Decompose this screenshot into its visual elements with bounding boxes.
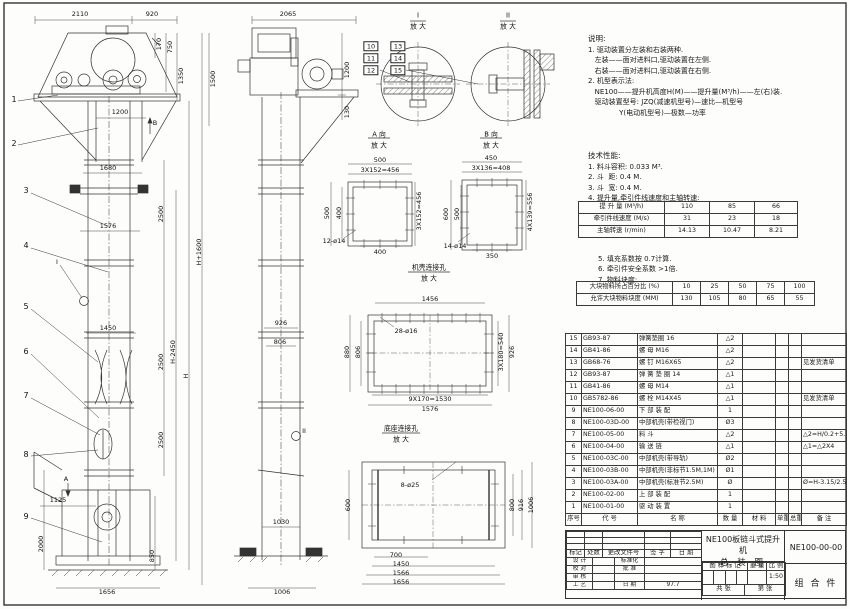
cell <box>743 394 776 406</box>
cell: 1 <box>718 406 743 418</box>
cell: 螺 母 M16 <box>638 346 718 358</box>
cell: 9 <box>566 406 582 418</box>
cell <box>789 430 802 442</box>
cell <box>802 490 847 502</box>
cell <box>802 382 847 394</box>
notes-title: 说明: <box>588 34 606 43</box>
cell: △1 <box>718 370 743 382</box>
detail-II <box>406 42 554 126</box>
tech-title: 技术性能: <box>588 151 621 160</box>
cell: NE100-05-00 <box>582 430 638 442</box>
cell: 12 <box>566 370 582 382</box>
cell <box>789 418 802 430</box>
cell: 10.47 <box>710 226 755 238</box>
sign-cell: 校 对 <box>567 565 593 573</box>
cell <box>776 490 789 502</box>
cell <box>802 454 847 466</box>
cell: 100 <box>785 282 815 294</box>
sign-cell: 设 计 <box>567 557 593 565</box>
tech-block: 技术性能: 1. 料斗容积: 0.033 M³. 2. 斗 距: 0.4 M. … <box>588 150 700 204</box>
cell: △2 <box>718 346 743 358</box>
cell: GB93-87 <box>582 334 638 346</box>
cell <box>776 502 789 514</box>
cell <box>743 382 776 394</box>
cell <box>776 430 789 442</box>
cell <box>776 358 789 370</box>
change-header-cell: 处数 <box>585 550 603 558</box>
cell: 6 <box>566 442 582 454</box>
cell: 23 <box>710 214 755 226</box>
cell: NE100-02-00 <box>582 490 638 502</box>
cell <box>802 334 847 346</box>
cell: 18 <box>755 214 798 226</box>
base-holes-view <box>349 462 532 584</box>
part-class: 组 合 件 <box>785 564 847 600</box>
sign-cell <box>593 557 615 565</box>
cell: 15 <box>566 334 582 346</box>
cell: NE100-06-00 <box>582 406 638 418</box>
casing-holes-view <box>350 303 509 405</box>
cell: 上 部 装 配 <box>638 490 718 502</box>
bom-header-cell: 名 称 <box>638 514 718 526</box>
cell: 130 <box>673 294 701 306</box>
front-view <box>18 16 209 588</box>
cell: 85 <box>710 202 755 214</box>
drawing-title: NE100板链斗式提升机 <box>702 534 784 556</box>
cell: NE100-03A-00 <box>582 478 638 490</box>
cell: 8.21 <box>755 226 798 238</box>
detail-I <box>368 10 516 433</box>
cell: 提 升 量 (M³/h) <box>579 202 665 214</box>
cell: 下 部 装 配 <box>638 406 718 418</box>
mark-header-cell: 图 样 标 记 <box>703 563 748 571</box>
sign-cell: 97.7 <box>645 581 702 589</box>
drawing-number: NE100-00-00 <box>785 531 847 564</box>
cell <box>743 466 776 478</box>
change-header-cell: 更改文件号 <box>603 550 645 558</box>
cell: 4 <box>566 466 582 478</box>
cell: 10 <box>566 394 582 406</box>
cell <box>743 418 776 430</box>
cell <box>789 502 802 514</box>
cell: 10 <box>673 282 701 294</box>
sign-cell <box>593 565 615 573</box>
cell: Ø1 <box>718 466 743 478</box>
cell <box>789 382 802 394</box>
title-block-number-area: NE100-00-00 组 合 件 <box>784 531 847 600</box>
sign-cell <box>615 573 645 581</box>
bom-header-cell: 总重 <box>789 514 802 526</box>
cell: △1 <box>718 382 743 394</box>
cell <box>789 454 802 466</box>
mark-header-cell: 重 量 <box>748 563 767 571</box>
cell <box>776 370 789 382</box>
cell: 50 <box>729 282 757 294</box>
cell <box>802 370 847 382</box>
cell: NE100-01-00 <box>582 502 638 514</box>
cell: 65 <box>757 294 785 306</box>
title-block-title-area: NE100板链斗式提升机 总 装 图 图 样 标 记重 量比 例 1:50 <box>701 531 784 600</box>
notes-block: 说明: 1. 驱动装置分左装和右装两种. 左装——面对进料口,驱动装置在左侧. … <box>588 33 782 118</box>
cell: 14 <box>566 346 582 358</box>
change-header-cell: 标记 <box>567 550 585 558</box>
cell: 55 <box>785 294 815 306</box>
cell: 31 <box>665 214 710 226</box>
sheet-number: 第 张 <box>745 584 786 595</box>
cell: NE100-03B-00 <box>582 466 638 478</box>
cell <box>789 358 802 370</box>
cell: GB5782-86 <box>582 394 638 406</box>
cell: GB41-86 <box>582 382 638 394</box>
bom-header-cell: 数 量 <box>718 514 743 526</box>
tech-lines: 1. 料斗容积: 0.033 M³. 2. 斗 距: 0.4 M. 3. 斗 宽… <box>588 163 700 203</box>
cell <box>743 346 776 358</box>
cell <box>776 466 789 478</box>
cell <box>743 490 776 502</box>
cell: △2 <box>718 358 743 370</box>
cell <box>789 466 802 478</box>
notes-lines: 1. 驱动装置分左装和右装两种. 左装——面对进料口,驱动装置在左侧. 右装——… <box>588 46 782 117</box>
cell: △1 <box>718 442 743 454</box>
cell: 驱 动 装 置 <box>638 502 718 514</box>
side-view <box>234 16 358 588</box>
cell: Ø <box>718 478 743 490</box>
cell <box>743 502 776 514</box>
cell: 螺 栓 M14X45 <box>638 394 718 406</box>
cell: 中部机壳(非标节1.5M,1M) <box>638 466 718 478</box>
cell <box>743 442 776 454</box>
cell <box>789 406 802 418</box>
cell: 允许大块物料块度 (MM) <box>577 294 673 306</box>
cell <box>743 406 776 418</box>
cell: NE100-03C-00 <box>582 454 638 466</box>
cell <box>776 418 789 430</box>
bom-header-cell: 单重 <box>776 514 789 526</box>
cell: 110 <box>665 202 710 214</box>
cell: GB93-87 <box>582 370 638 382</box>
cell <box>776 382 789 394</box>
cell <box>776 406 789 418</box>
sign-cell <box>593 581 615 589</box>
cell: 螺 钉 M16X65 <box>638 358 718 370</box>
cell: 13 <box>566 358 582 370</box>
bom-table: 15GB93-87弹簧垫圈 16△214GB41-86螺 母 M16△213GB… <box>565 333 847 526</box>
cell: 弹簧垫圈 16 <box>638 334 718 346</box>
cell: 主轴转速 (r/min) <box>579 226 665 238</box>
title-block-revision-area: 标记处数更改文件号签 字日 期 设 计标准化校 对批 准审 核工 艺日 期97.… <box>566 531 701 600</box>
sign-cell: 审 核 <box>567 573 593 581</box>
cell <box>776 454 789 466</box>
cell <box>776 442 789 454</box>
cell <box>802 502 847 514</box>
notes2-block: 5. 填充系数按 0.7计算. 6. 牵引件安全系数 >1倍. 7. 物料块度: <box>598 243 678 285</box>
cell: 7 <box>566 430 582 442</box>
cell: Ø=H-3.15/2.5 <box>802 478 847 490</box>
cell: Ø3 <box>718 418 743 430</box>
cell <box>789 442 802 454</box>
cell: 14.13 <box>665 226 710 238</box>
cell: NE100-03D-00 <box>582 418 638 430</box>
cell: 中部机壳(标准节2.5M) <box>638 478 718 490</box>
cell <box>802 346 847 358</box>
cell: NE100-04-00 <box>582 442 638 454</box>
sign-cell <box>645 557 702 565</box>
cell: △1 <box>718 394 743 406</box>
cell: 105 <box>701 294 729 306</box>
cell: △2=H/0.2+5.75 <box>802 430 847 442</box>
cell: △1=△2X4 <box>802 442 847 454</box>
cell: 中部机壳(带导轨) <box>638 454 718 466</box>
cell: 输 送 链 <box>638 442 718 454</box>
lump-size-table: 大块物料所占百分比 (%)10255075100允许大块物料块度 (MM)130… <box>576 281 815 306</box>
cell <box>743 430 776 442</box>
sign-cell <box>645 565 702 573</box>
cell: 1 <box>718 502 743 514</box>
cell: Ø2 <box>718 454 743 466</box>
cell: 大块物料所占百分比 (%) <box>577 282 673 294</box>
cell <box>743 454 776 466</box>
cell <box>789 394 802 406</box>
cell: 66 <box>755 202 798 214</box>
cell: 3 <box>566 478 582 490</box>
scale-value: 1:50 <box>767 570 786 584</box>
cell: 螺 母 M14 <box>638 382 718 394</box>
sign-cell: 批 准 <box>615 565 645 573</box>
cell: 8 <box>566 418 582 430</box>
cell: 料 斗 <box>638 430 718 442</box>
cell: △2 <box>718 334 743 346</box>
cell <box>802 406 847 418</box>
cell <box>802 418 847 430</box>
cell <box>743 358 776 370</box>
cell <box>789 346 802 358</box>
cell: 弹 簧 垫 圈 14 <box>638 370 718 382</box>
sign-cell <box>645 573 702 581</box>
cell <box>789 370 802 382</box>
sign-cell: 标准化 <box>615 557 645 565</box>
cell <box>789 334 802 346</box>
cell: 1 <box>566 502 582 514</box>
bom-header-cell: 备 注 <box>802 514 847 526</box>
sign-cell: 工 艺 <box>567 581 593 589</box>
cell <box>776 334 789 346</box>
cell: 牵引件线速度 (M/s) <box>579 214 665 226</box>
cell: 75 <box>757 282 785 294</box>
view-A <box>331 164 415 248</box>
cell: 见发货清单 <box>802 358 847 370</box>
cell: △2 <box>718 430 743 442</box>
bom-header-cell: 代 号 <box>582 514 638 526</box>
cell <box>776 478 789 490</box>
cell <box>743 478 776 490</box>
cell <box>789 478 802 490</box>
mark-header-cell: 比 例 <box>767 563 786 571</box>
performance-table: 提 升 量 (M³/h)1108566牵引件线速度 (M/s)312318主轴转… <box>578 201 798 238</box>
cell <box>776 346 789 358</box>
cell: 25 <box>701 282 729 294</box>
cell: 中部机壳(带检视门) <box>638 418 718 430</box>
view-B <box>451 162 526 252</box>
cell: 80 <box>729 294 757 306</box>
cell <box>789 490 802 502</box>
notes2-lines: 5. 填充系数按 0.7计算. 6. 牵引件安全系数 >1倍. 7. 物料块度: <box>598 255 678 284</box>
sign-cell: 日 期 <box>615 581 645 589</box>
cell: 见发货清单 <box>802 394 847 406</box>
bom-header-cell: 材 料 <box>743 514 776 526</box>
cell <box>743 334 776 346</box>
cell <box>802 466 847 478</box>
sheet-count: 共 张 <box>703 584 745 595</box>
title-block: 标记处数更改文件号签 字日 期 设 计标准化校 对批 准审 核工 艺日 期97.… <box>565 530 846 599</box>
cell <box>743 370 776 382</box>
cell <box>776 394 789 406</box>
cell: 5 <box>566 454 582 466</box>
sign-cell <box>593 573 615 581</box>
cell: 11 <box>566 382 582 394</box>
cell: 2 <box>566 490 582 502</box>
cell: 1 <box>718 490 743 502</box>
cell: GB68-76 <box>582 358 638 370</box>
cell: GB41-86 <box>582 346 638 358</box>
bom-header-cell: 序号 <box>566 514 582 526</box>
